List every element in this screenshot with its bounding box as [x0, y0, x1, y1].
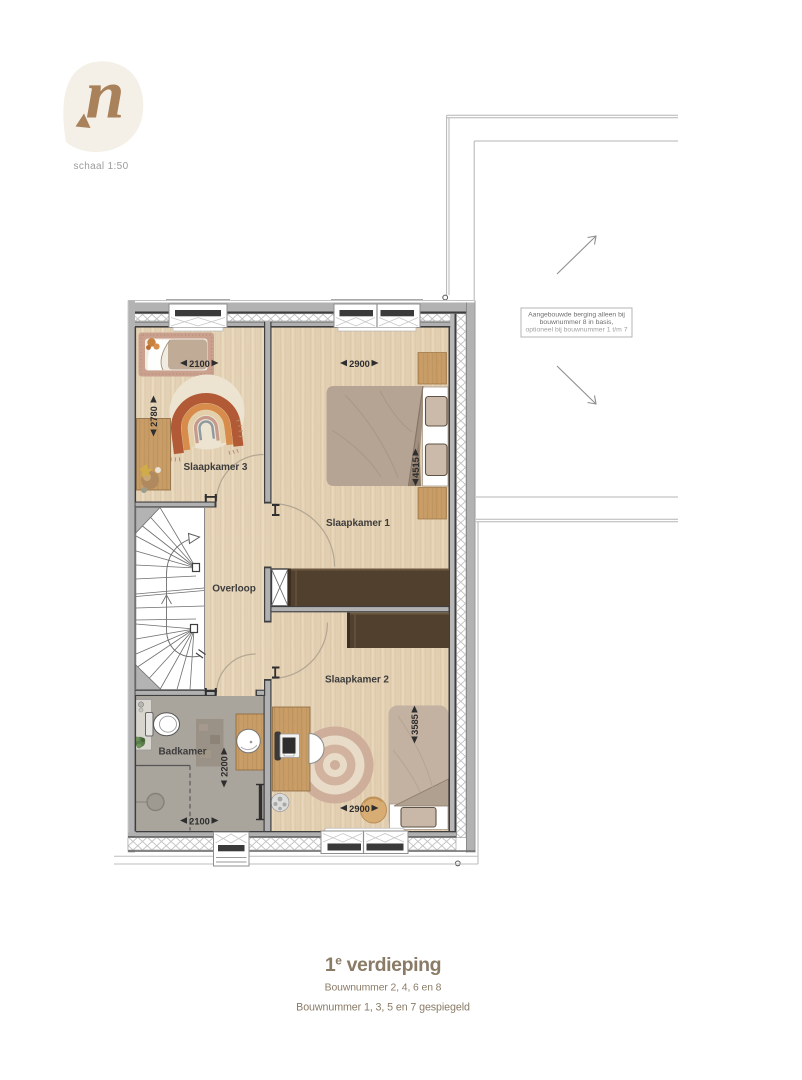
svg-text:n: n [86, 57, 125, 134]
svg-text:1e verdieping: 1e verdieping [325, 954, 441, 977]
svg-text:Bouwnummer 1, 3, 5 en 7 gespie: Bouwnummer 1, 3, 5 en 7 gespiegeld [296, 1002, 470, 1014]
svg-text:Slaapkamer 1: Slaapkamer 1 [326, 518, 390, 529]
svg-text:3585: 3585 [410, 714, 420, 735]
svg-text:Bouwnummer 2, 4, 6 en 8: Bouwnummer 2, 4, 6 en 8 [325, 983, 442, 994]
svg-text:2100: 2100 [189, 816, 210, 826]
svg-text:Slaapkamer 2: Slaapkamer 2 [325, 675, 389, 686]
svg-text:Overloop: Overloop [212, 584, 256, 595]
svg-text:2100: 2100 [189, 359, 210, 369]
svg-text:2780: 2780 [149, 406, 159, 427]
svg-text:bouwnummer 8 in basis,: bouwnummer 8 in basis, [540, 319, 614, 326]
svg-text:optioneel bij bouwnummer 1 t/m: optioneel bij bouwnummer 1 t/m 7 [525, 327, 627, 334]
svg-text:2900: 2900 [349, 359, 370, 369]
svg-text:Aangebouwde berging alleen bij: Aangebouwde berging alleen bij [528, 312, 625, 319]
svg-text:2900: 2900 [349, 804, 370, 814]
svg-text:Slaapkamer 3: Slaapkamer 3 [184, 462, 248, 473]
svg-text:2200: 2200 [219, 756, 229, 777]
svg-text:4515: 4515 [411, 457, 421, 478]
svg-text:schaal 1:50: schaal 1:50 [74, 161, 129, 172]
svg-text:Badkamer: Badkamer [159, 747, 207, 758]
